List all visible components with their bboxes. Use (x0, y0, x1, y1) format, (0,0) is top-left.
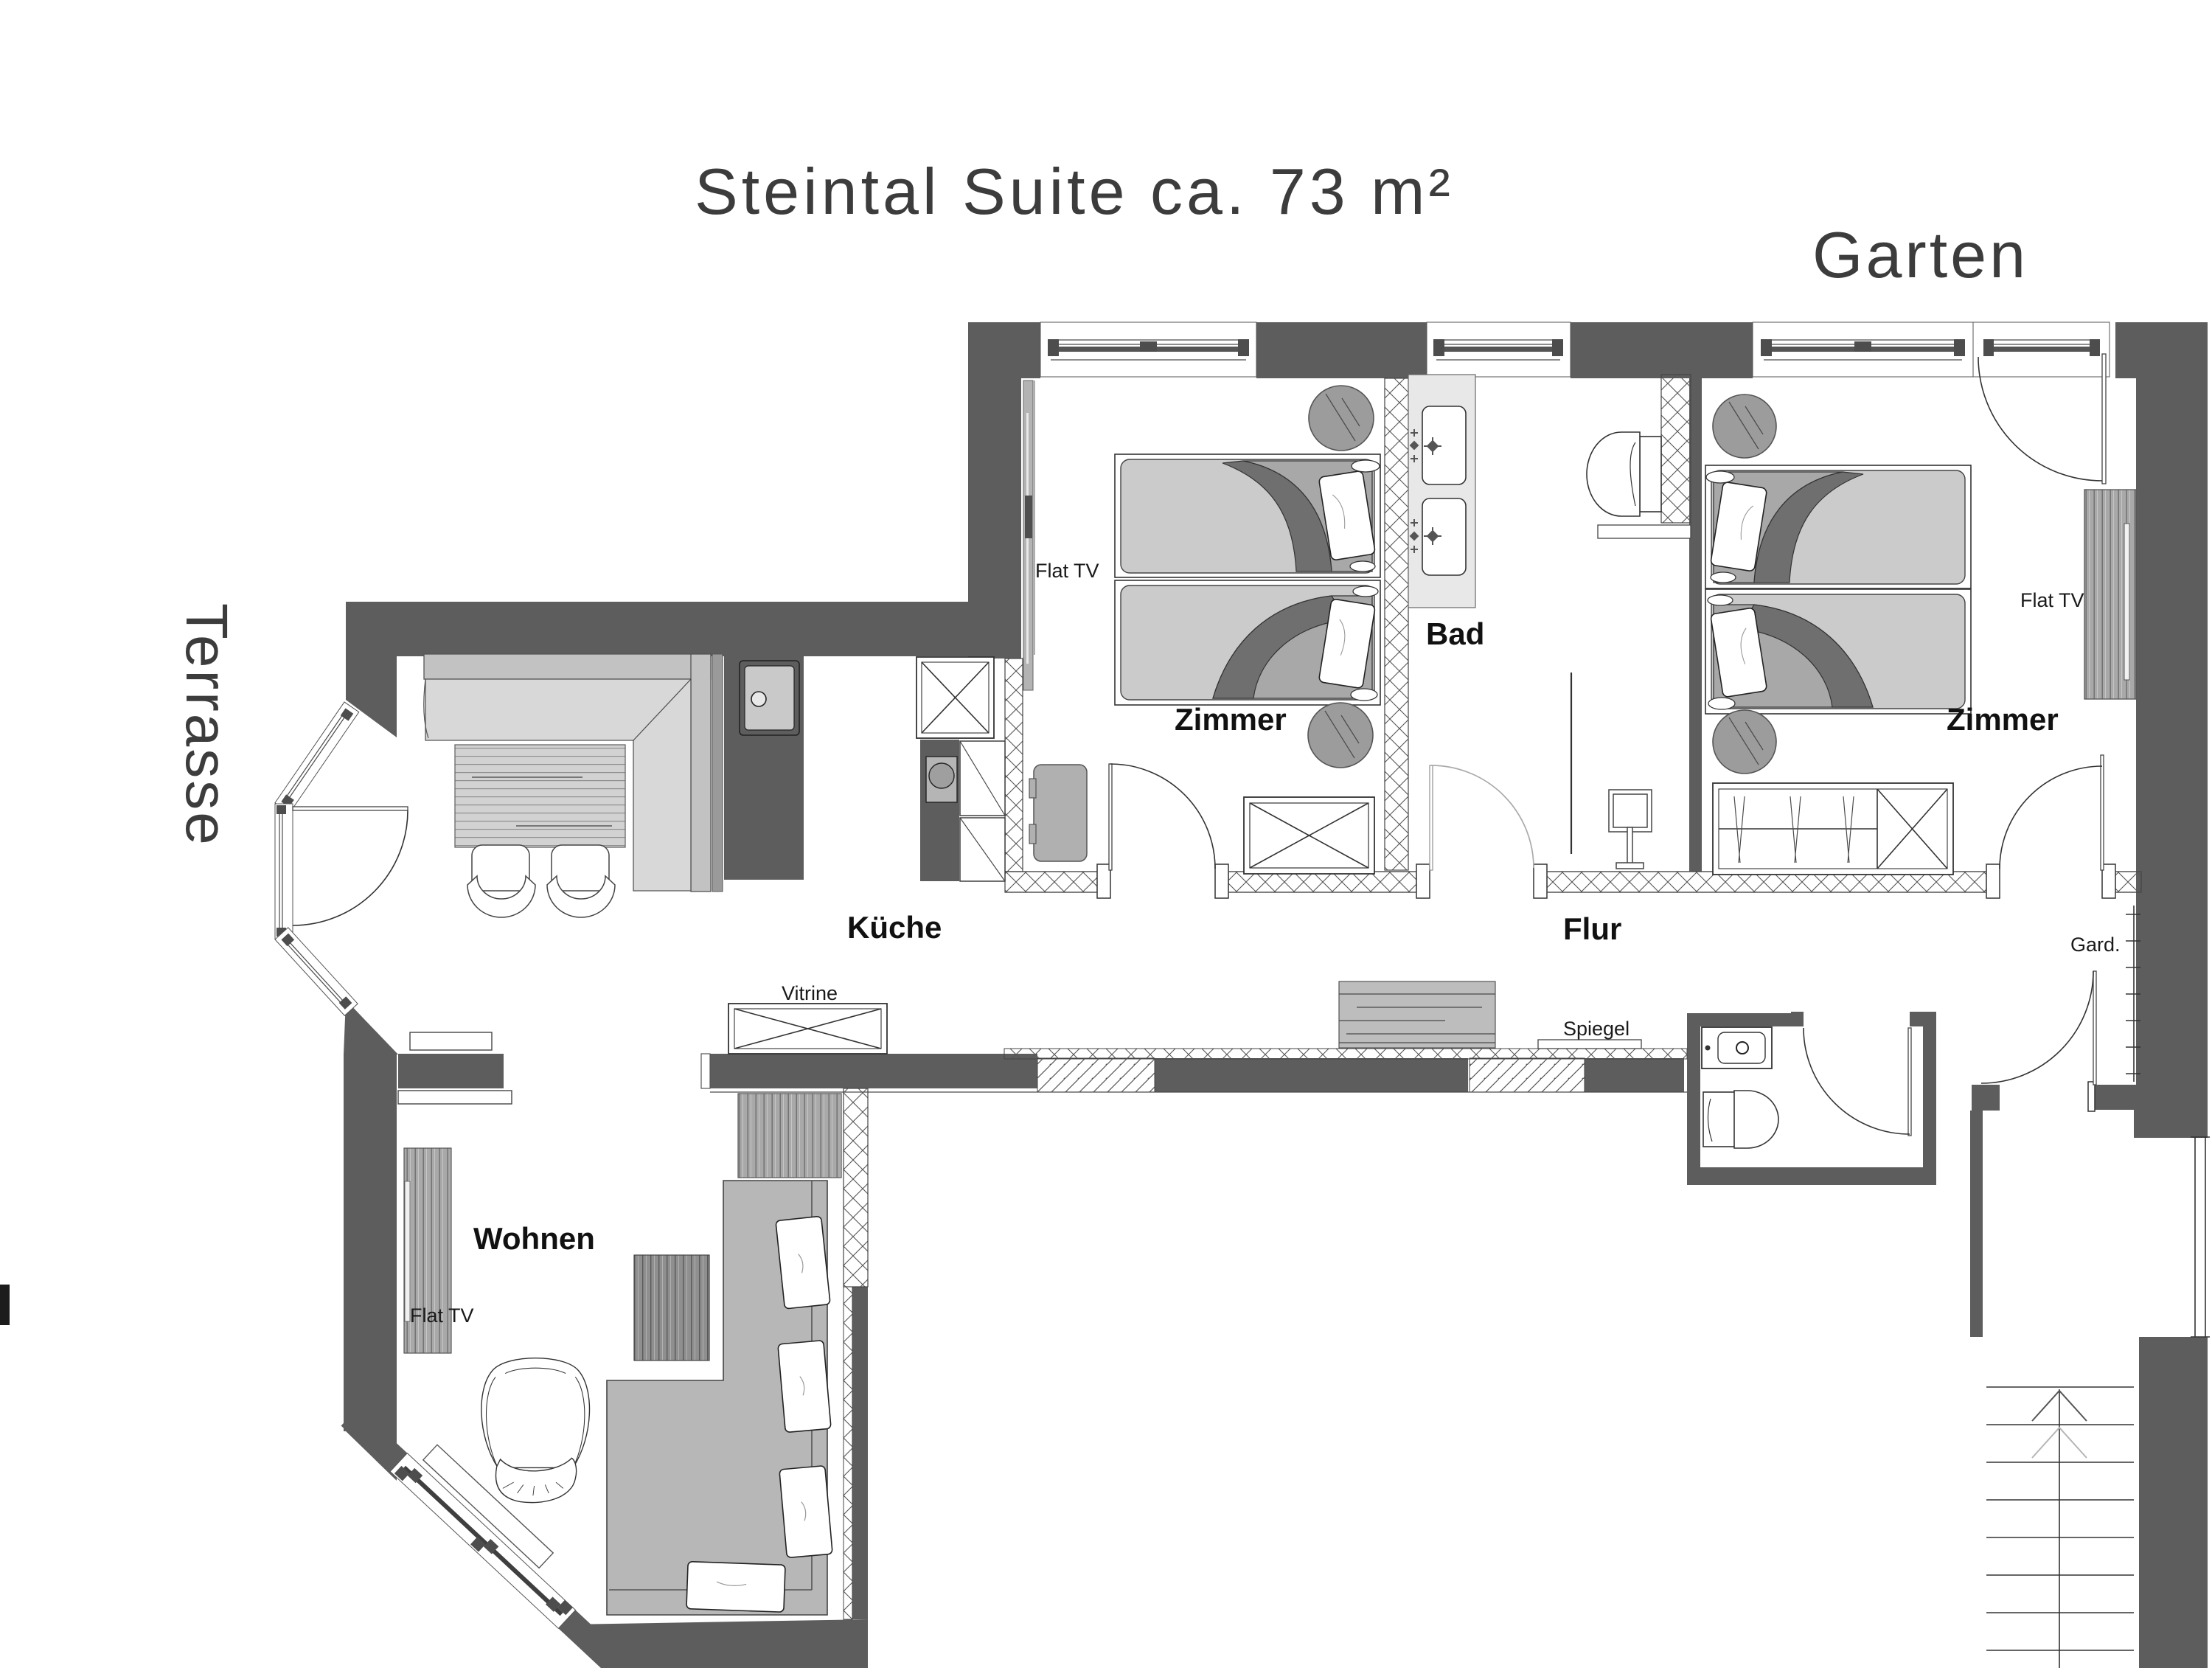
svg-text:Zimmer: Zimmer (1175, 702, 1287, 737)
svg-text:Garten: Garten (1812, 218, 2028, 291)
svg-text:Gard.: Gard. (2070, 934, 2121, 956)
svg-text:Wohnen: Wohnen (473, 1221, 595, 1256)
svg-text:Vitrine: Vitrine (782, 982, 838, 1004)
svg-text:Terrasse: Terrasse (174, 603, 240, 847)
svg-text:Steintal Suite ca. 73 m²: Steintal Suite ca. 73 m² (695, 155, 1454, 228)
svg-text:Flat TV: Flat TV (410, 1304, 474, 1327)
svg-text:Flat TV: Flat TV (2020, 589, 2084, 611)
svg-text:Bad: Bad (1426, 616, 1484, 651)
svg-text:Flur: Flur (1563, 911, 1621, 946)
svg-text:Spiegel: Spiegel (1563, 1018, 1630, 1040)
svg-text:Flat TV: Flat TV (1035, 560, 1099, 582)
svg-text:Zimmer: Zimmer (1947, 702, 2059, 737)
svg-text:Küche: Küche (847, 910, 942, 945)
